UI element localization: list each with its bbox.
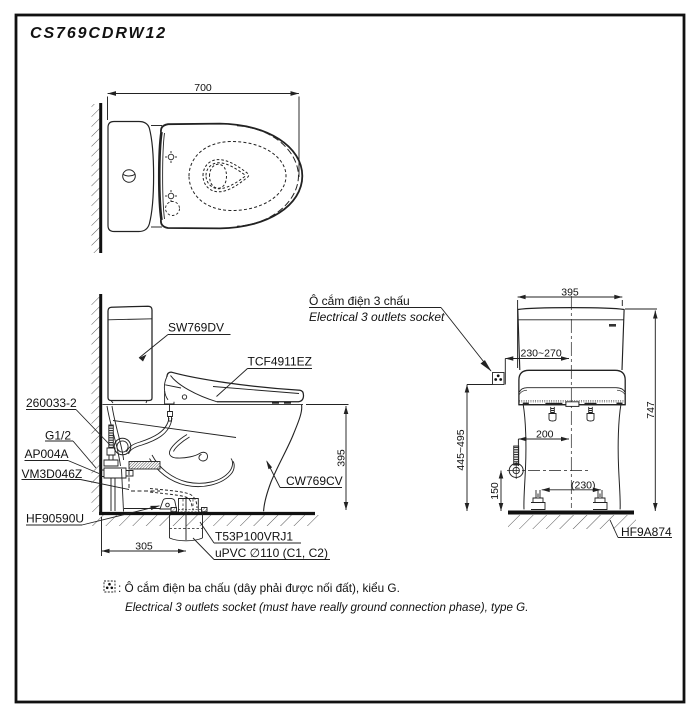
svg-text:T53P100VRJ1: T53P100VRJ1 bbox=[215, 530, 293, 544]
svg-text:445~495: 445~495 bbox=[455, 429, 467, 470]
svg-text:uPVC ∅110 (C1, C2): uPVC ∅110 (C1, C2) bbox=[215, 546, 328, 560]
svg-text:SW769DV: SW769DV bbox=[168, 321, 224, 335]
svg-text:G1/2: G1/2 bbox=[45, 429, 71, 443]
svg-text:Electrical 3 outlets socket: Electrical 3 outlets socket bbox=[309, 310, 445, 324]
svg-text:395: 395 bbox=[561, 286, 579, 298]
svg-text:747: 747 bbox=[645, 401, 657, 419]
svg-text:Electrical 3 outlets socket (m: Electrical 3 outlets socket (must have r… bbox=[125, 601, 528, 614]
svg-text:230~270: 230~270 bbox=[521, 348, 562, 360]
svg-text:TCF4911EZ: TCF4911EZ bbox=[248, 355, 312, 369]
svg-text:AP004A: AP004A bbox=[25, 447, 69, 461]
svg-text:(230): (230) bbox=[571, 479, 596, 491]
svg-text:CW769CV: CW769CV bbox=[286, 474, 343, 488]
svg-text:700: 700 bbox=[194, 82, 212, 94]
svg-text:150: 150 bbox=[489, 482, 501, 500]
svg-text:: Ô cắm điện ba chấu (dây phải: : Ô cắm điện ba chấu (dây phải được nối … bbox=[118, 581, 400, 595]
svg-text:CS769CDRW12: CS769CDRW12 bbox=[30, 25, 167, 42]
svg-text:200: 200 bbox=[536, 428, 554, 440]
svg-text:395: 395 bbox=[335, 449, 347, 467]
svg-text:VM3D046Z: VM3D046Z bbox=[22, 467, 83, 481]
svg-text:HF9A874: HF9A874 bbox=[621, 525, 672, 539]
svg-text:Ô cắm điện 3 chấu: Ô cắm điện 3 chấu bbox=[309, 293, 410, 308]
svg-text:HF90590U: HF90590U bbox=[26, 512, 84, 526]
svg-text:305: 305 bbox=[135, 541, 153, 553]
svg-text:260033-2: 260033-2 bbox=[26, 396, 77, 410]
